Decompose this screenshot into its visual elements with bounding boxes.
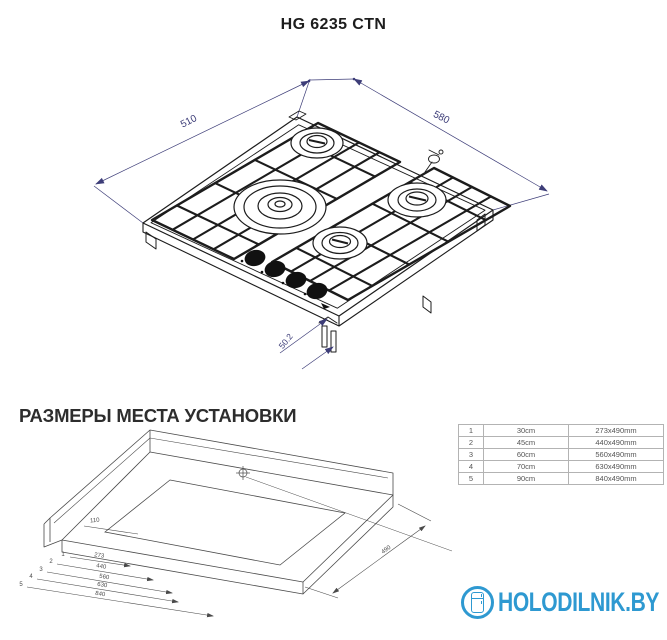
mark-5-value: 840 [95,591,106,599]
edge-offset-label: 110 [90,517,101,524]
row-num-cell: 5 [459,473,484,485]
installation-heading: РАЗМЕРЫ МЕСТА УСТАНОВКИ [19,405,296,427]
niche-cell: 273x490mm [569,425,664,437]
table-row: 4 70cm 630x490mm [459,461,664,473]
fridge-icon [461,586,494,619]
page-title: HG 6235 CTN [0,16,667,34]
table-row: 3 60cm 560x490mm [459,449,664,461]
row-num-cell: 1 [459,425,484,437]
size-cell: 60cm [484,449,569,461]
niche-cell: 630x490mm [569,461,664,473]
burner-wok-left [234,180,326,234]
niche-cell: 560x490mm [569,449,664,461]
row-num-cell: 4 [459,461,484,473]
size-cell: 90cm [484,473,569,485]
mark-3-num: 3 [39,567,43,573]
fridge-icon-body [471,592,484,613]
page: HG 6235 CTN 510 580 [0,0,667,640]
mark-4-num: 4 [29,574,33,580]
cooktop-depth-label: 580 [431,109,451,127]
niche-cell: 440x490mm [569,437,664,449]
mark-1-value: 273 [94,552,105,560]
mark-2-value: 440 [96,563,108,571]
niche-size-table: 1 30cm 273x490mm 2 45cm 440x490mm 3 60cm… [458,424,664,485]
burner-rear [291,128,343,158]
mark-3-value: 560 [99,574,111,582]
niche-cell: 840x490mm [569,473,664,485]
watermark-text: HOLODILNIK.BY [498,586,659,619]
size-cell: 70cm [484,461,569,473]
row-num-cell: 2 [459,437,484,449]
watermark-logo: HOLODILNIK.BY [461,586,667,619]
cutout-opening [105,480,345,565]
mark-1-num: 1 [61,552,65,558]
cooktop-width-label: 510 [179,113,199,131]
dimension-490 [305,504,431,598]
mark-5-num: 5 [19,582,23,588]
center-mark [236,466,452,551]
cooktop-height-label: 50.2 [277,331,295,350]
size-cell: 45cm [484,437,569,449]
size-cell: 30cm [484,425,569,437]
burner-right [388,183,446,217]
table-row: 5 90cm 840x490mm [459,473,664,485]
table-row: 1 30cm 273x490mm [459,425,664,437]
width-dimension-lines [27,557,213,616]
mark-4-value: 630 [97,582,109,590]
burner-front [313,227,367,259]
mark-2-num: 2 [49,559,53,565]
cooktop-isometric-drawing: 510 580 [0,55,667,400]
table-row: 2 45cm 440x490mm [459,437,664,449]
dimension-110: 110 [84,517,138,534]
row-num-cell: 3 [459,449,484,461]
